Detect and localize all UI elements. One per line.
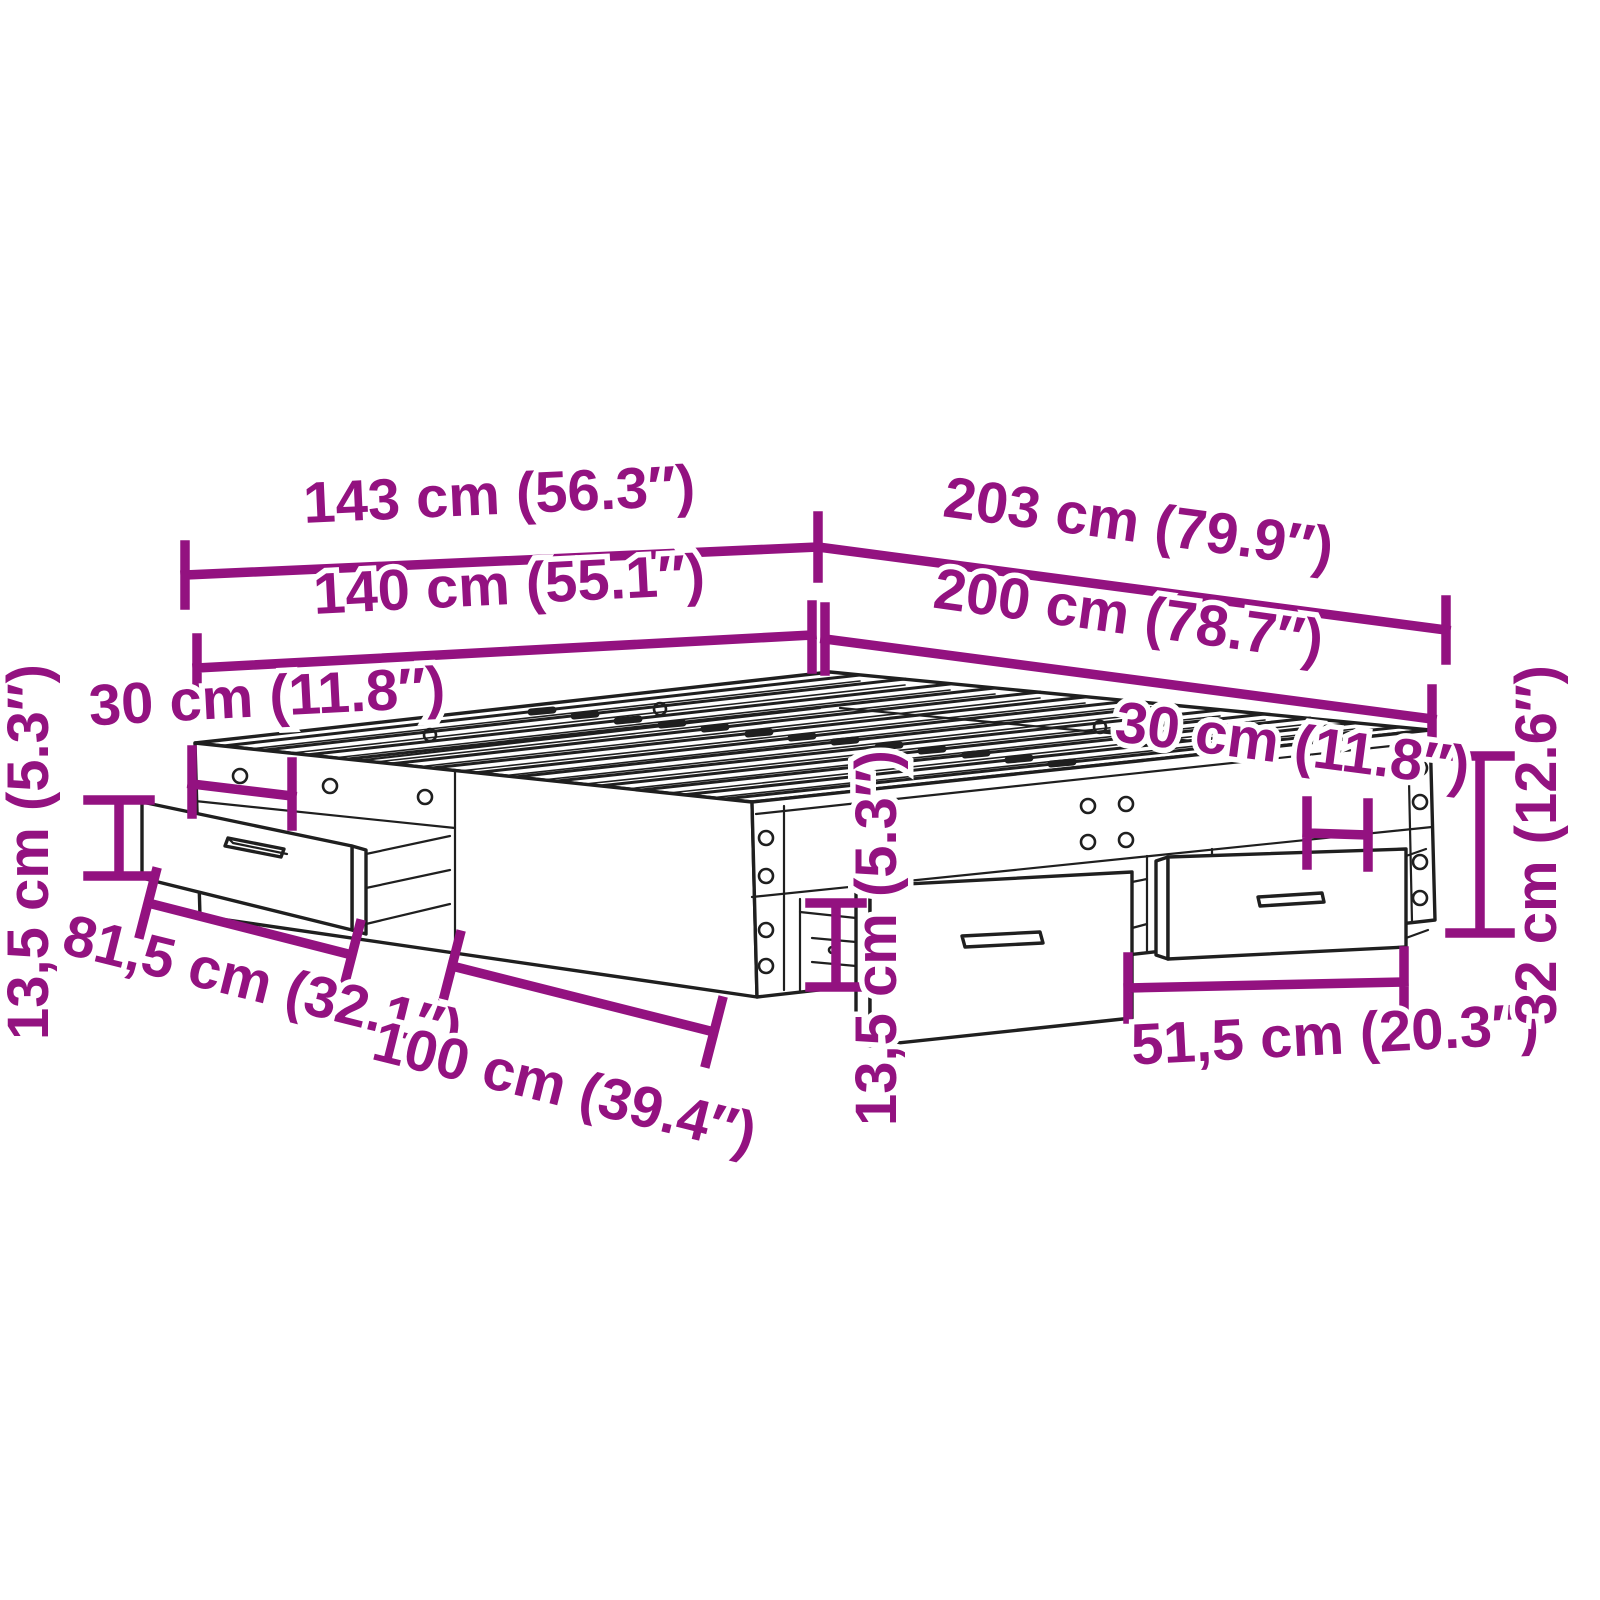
right-drawer-handle <box>1258 893 1324 906</box>
right-drawer-side-cap <box>1156 857 1168 959</box>
middle-drawer-handle <box>962 932 1043 947</box>
screw-hole <box>1081 835 1095 849</box>
screw-hole <box>323 779 337 793</box>
outer-width-label: 143 cm (56.3″) <box>302 453 697 536</box>
frame-height-label: 32 cm (12.6″) <box>1504 665 1569 1025</box>
screw-hole <box>1081 799 1095 813</box>
screw-hole <box>1413 795 1427 809</box>
screw-hole <box>233 769 247 783</box>
screw-hole <box>759 923 773 937</box>
mattress-length-label: 200 cm (78.7″) <box>930 556 1327 674</box>
screw-hole <box>1413 855 1427 869</box>
middle-drawer-front <box>870 872 1132 1046</box>
screw-hole <box>418 790 432 804</box>
screw-hole <box>759 831 773 845</box>
right-drawer <box>1156 849 1428 959</box>
screw-hole <box>1119 833 1133 847</box>
screw-hole <box>759 959 773 973</box>
dimension-diagram-page: 143 cm (56.3″) 203 cm (79.9″) 140 cm (55… <box>0 0 1600 1600</box>
screw-hole <box>1119 797 1133 811</box>
head-drawer-height-label: 13,5 cm (5.3″) <box>0 664 61 1040</box>
mattress-width-label: 140 cm (55.1″) <box>312 542 707 627</box>
screw-hole <box>1413 891 1427 905</box>
side-drawer-width-label: 51,5 cm (20.3″) <box>1129 991 1540 1077</box>
side-drawer-height-label: 13,5 cm (5.3″) <box>844 750 909 1126</box>
screw-hole <box>759 869 773 883</box>
bed-frame-dimension-diagram: 143 cm (56.3″) 203 cm (79.9″) 140 cm (55… <box>0 0 1600 1600</box>
